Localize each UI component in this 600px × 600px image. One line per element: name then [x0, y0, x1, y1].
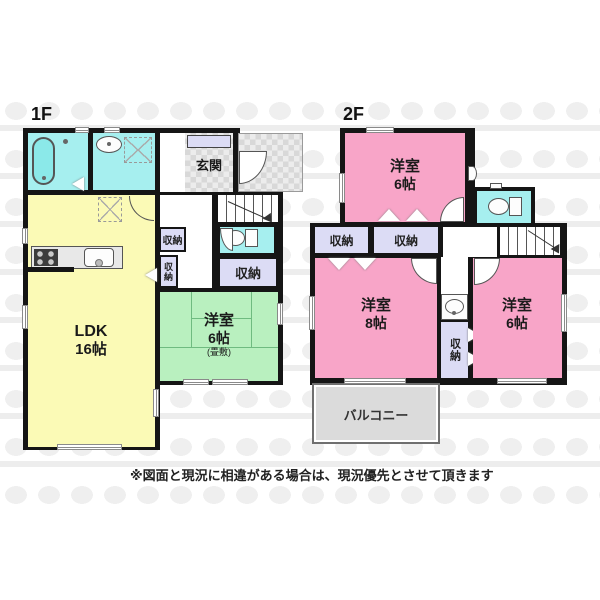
floor1-title: 1F: [31, 104, 52, 125]
window: [277, 303, 283, 325]
f2-room-left-label: 洋室 8帖: [336, 297, 416, 332]
kitchen-sink-drain: [95, 259, 103, 267]
f2-closet-left-label: 収納: [329, 232, 353, 249]
f1-closet-big: 収納: [218, 257, 278, 288]
f2-room-right-size: 6帖: [477, 315, 557, 332]
f2-room-top-name: 洋室: [365, 158, 445, 176]
ldk-name: LDK: [51, 322, 131, 341]
f1-closet-hall-label: 収納: [163, 232, 183, 247]
f2-closet-tall: 収納: [441, 322, 468, 378]
window: [344, 378, 406, 384]
toilet-icon: [488, 198, 509, 215]
balcony-text: バルコニー: [344, 408, 409, 423]
f2-toilet-tank: [509, 197, 522, 216]
balcony-label: バルコニー: [336, 406, 416, 425]
f1-hallway-top: [160, 133, 185, 192]
washbasin-tap: [107, 142, 111, 146]
f2-room-right-label: 洋室 6帖: [477, 297, 557, 332]
washbasin-tap: [452, 311, 456, 315]
window: [153, 389, 159, 417]
f1-closet-hall-small-label: 収納: [162, 262, 175, 282]
window: [57, 444, 122, 450]
disclaimer-text: ※図面と現況に相違がある場合は、現況優先とさせて頂きます: [130, 465, 494, 484]
window: [75, 127, 89, 133]
vent-window: [468, 166, 477, 181]
window: [561, 294, 567, 332]
window: [22, 228, 28, 244]
f2-room-left-closet-door: [328, 258, 350, 270]
f2-room-right-name: 洋室: [477, 297, 557, 315]
f1-closet-hall-small: 収納: [159, 255, 178, 288]
f1-tatami-size: 6帖: [179, 330, 259, 347]
f2-room-top-size: 6帖: [365, 176, 445, 193]
kitchen-stove-icon: [34, 249, 58, 266]
window: [22, 305, 28, 329]
f1-tatami-door: [145, 268, 157, 282]
f2-closet-tall-label: 収納: [447, 338, 463, 362]
f2-room-left-name: 洋室: [336, 297, 416, 315]
window: [309, 296, 315, 330]
f2-room-left-size: 8帖: [336, 315, 416, 332]
window: [212, 379, 248, 385]
window: [183, 379, 209, 385]
window: [366, 127, 394, 133]
window: [339, 173, 345, 203]
vent-window: [490, 183, 502, 189]
f2-closet-mid-label: 収納: [394, 232, 418, 249]
ldk-room: [28, 195, 155, 447]
f2-corridor: [443, 227, 497, 257]
f1-tatami-name: 洋室: [179, 312, 259, 330]
bath-folding-door: [72, 177, 84, 191]
f1-tatami-note: (畳敷): [179, 347, 259, 358]
laundry-space-icon: [124, 137, 152, 163]
shower-icon: [63, 139, 68, 144]
f1-closet-big-label: 収納: [235, 263, 261, 282]
f1-tatami-label: 洋室 6帖 (畳敷): [179, 312, 259, 358]
bathtub-drain: [42, 176, 46, 180]
f2-closet-mid: 収納: [374, 227, 438, 253]
shoe-cabinet: [187, 135, 231, 148]
ldk-size: 16帖: [51, 341, 131, 359]
window: [104, 127, 120, 133]
f2-room-top-closet-door: [378, 209, 400, 221]
floor-plan-canvas: 1F 2F 玄関 LDK 16帖 収納 収納 収: [0, 0, 600, 600]
refrigerator-space-icon: [98, 197, 122, 222]
kitchen-partition-wall: [28, 267, 74, 272]
f2-closet-left: 収納: [315, 227, 368, 253]
f2-room-left-closet-door: [354, 258, 376, 270]
window: [497, 378, 547, 384]
entrance-label: 玄関: [185, 158, 233, 174]
f1-closet-hall: 収納: [159, 227, 186, 252]
ldk-label: LDK 16帖: [51, 322, 131, 359]
f1-toilet-tank: [245, 229, 258, 247]
f2-corridor-basin-nook: [441, 257, 468, 294]
floor2-title: 2F: [343, 104, 364, 125]
f2-room-top-label: 洋室 6帖: [365, 158, 445, 193]
f2-room-top-closet-door: [406, 209, 428, 221]
